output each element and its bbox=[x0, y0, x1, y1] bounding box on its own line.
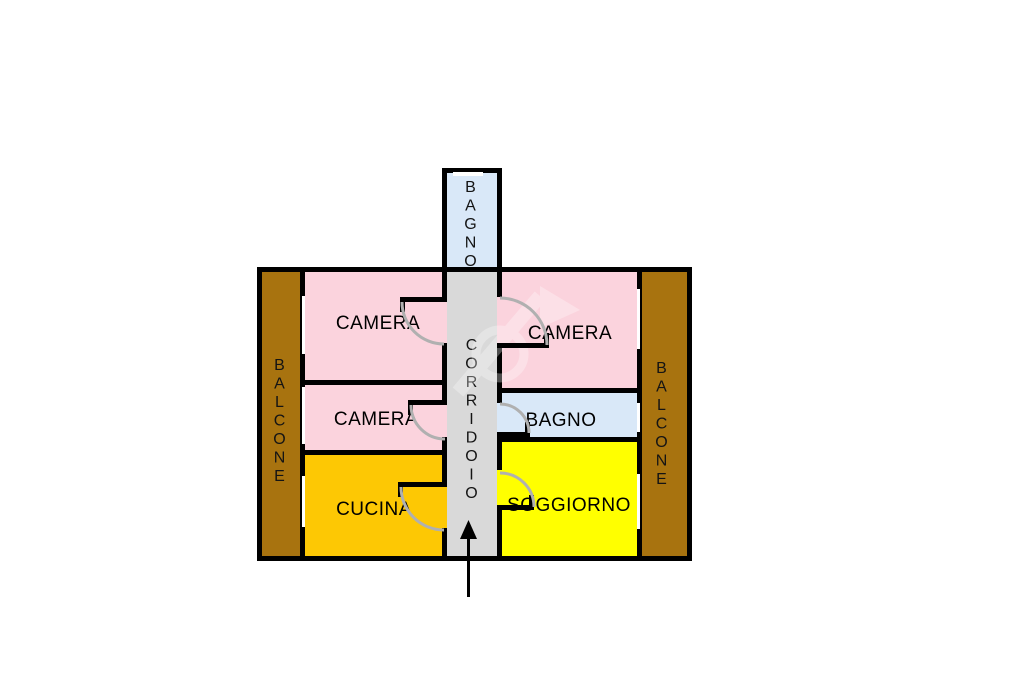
room-label-bagno-top: BAGNO bbox=[461, 179, 479, 272]
floor-plan-canvas: BAGNO CAMERA CAMERA CUCINA CAMERA BAGNO … bbox=[0, 0, 1024, 682]
window-slit bbox=[453, 172, 483, 176]
apartment-outline bbox=[257, 267, 692, 561]
